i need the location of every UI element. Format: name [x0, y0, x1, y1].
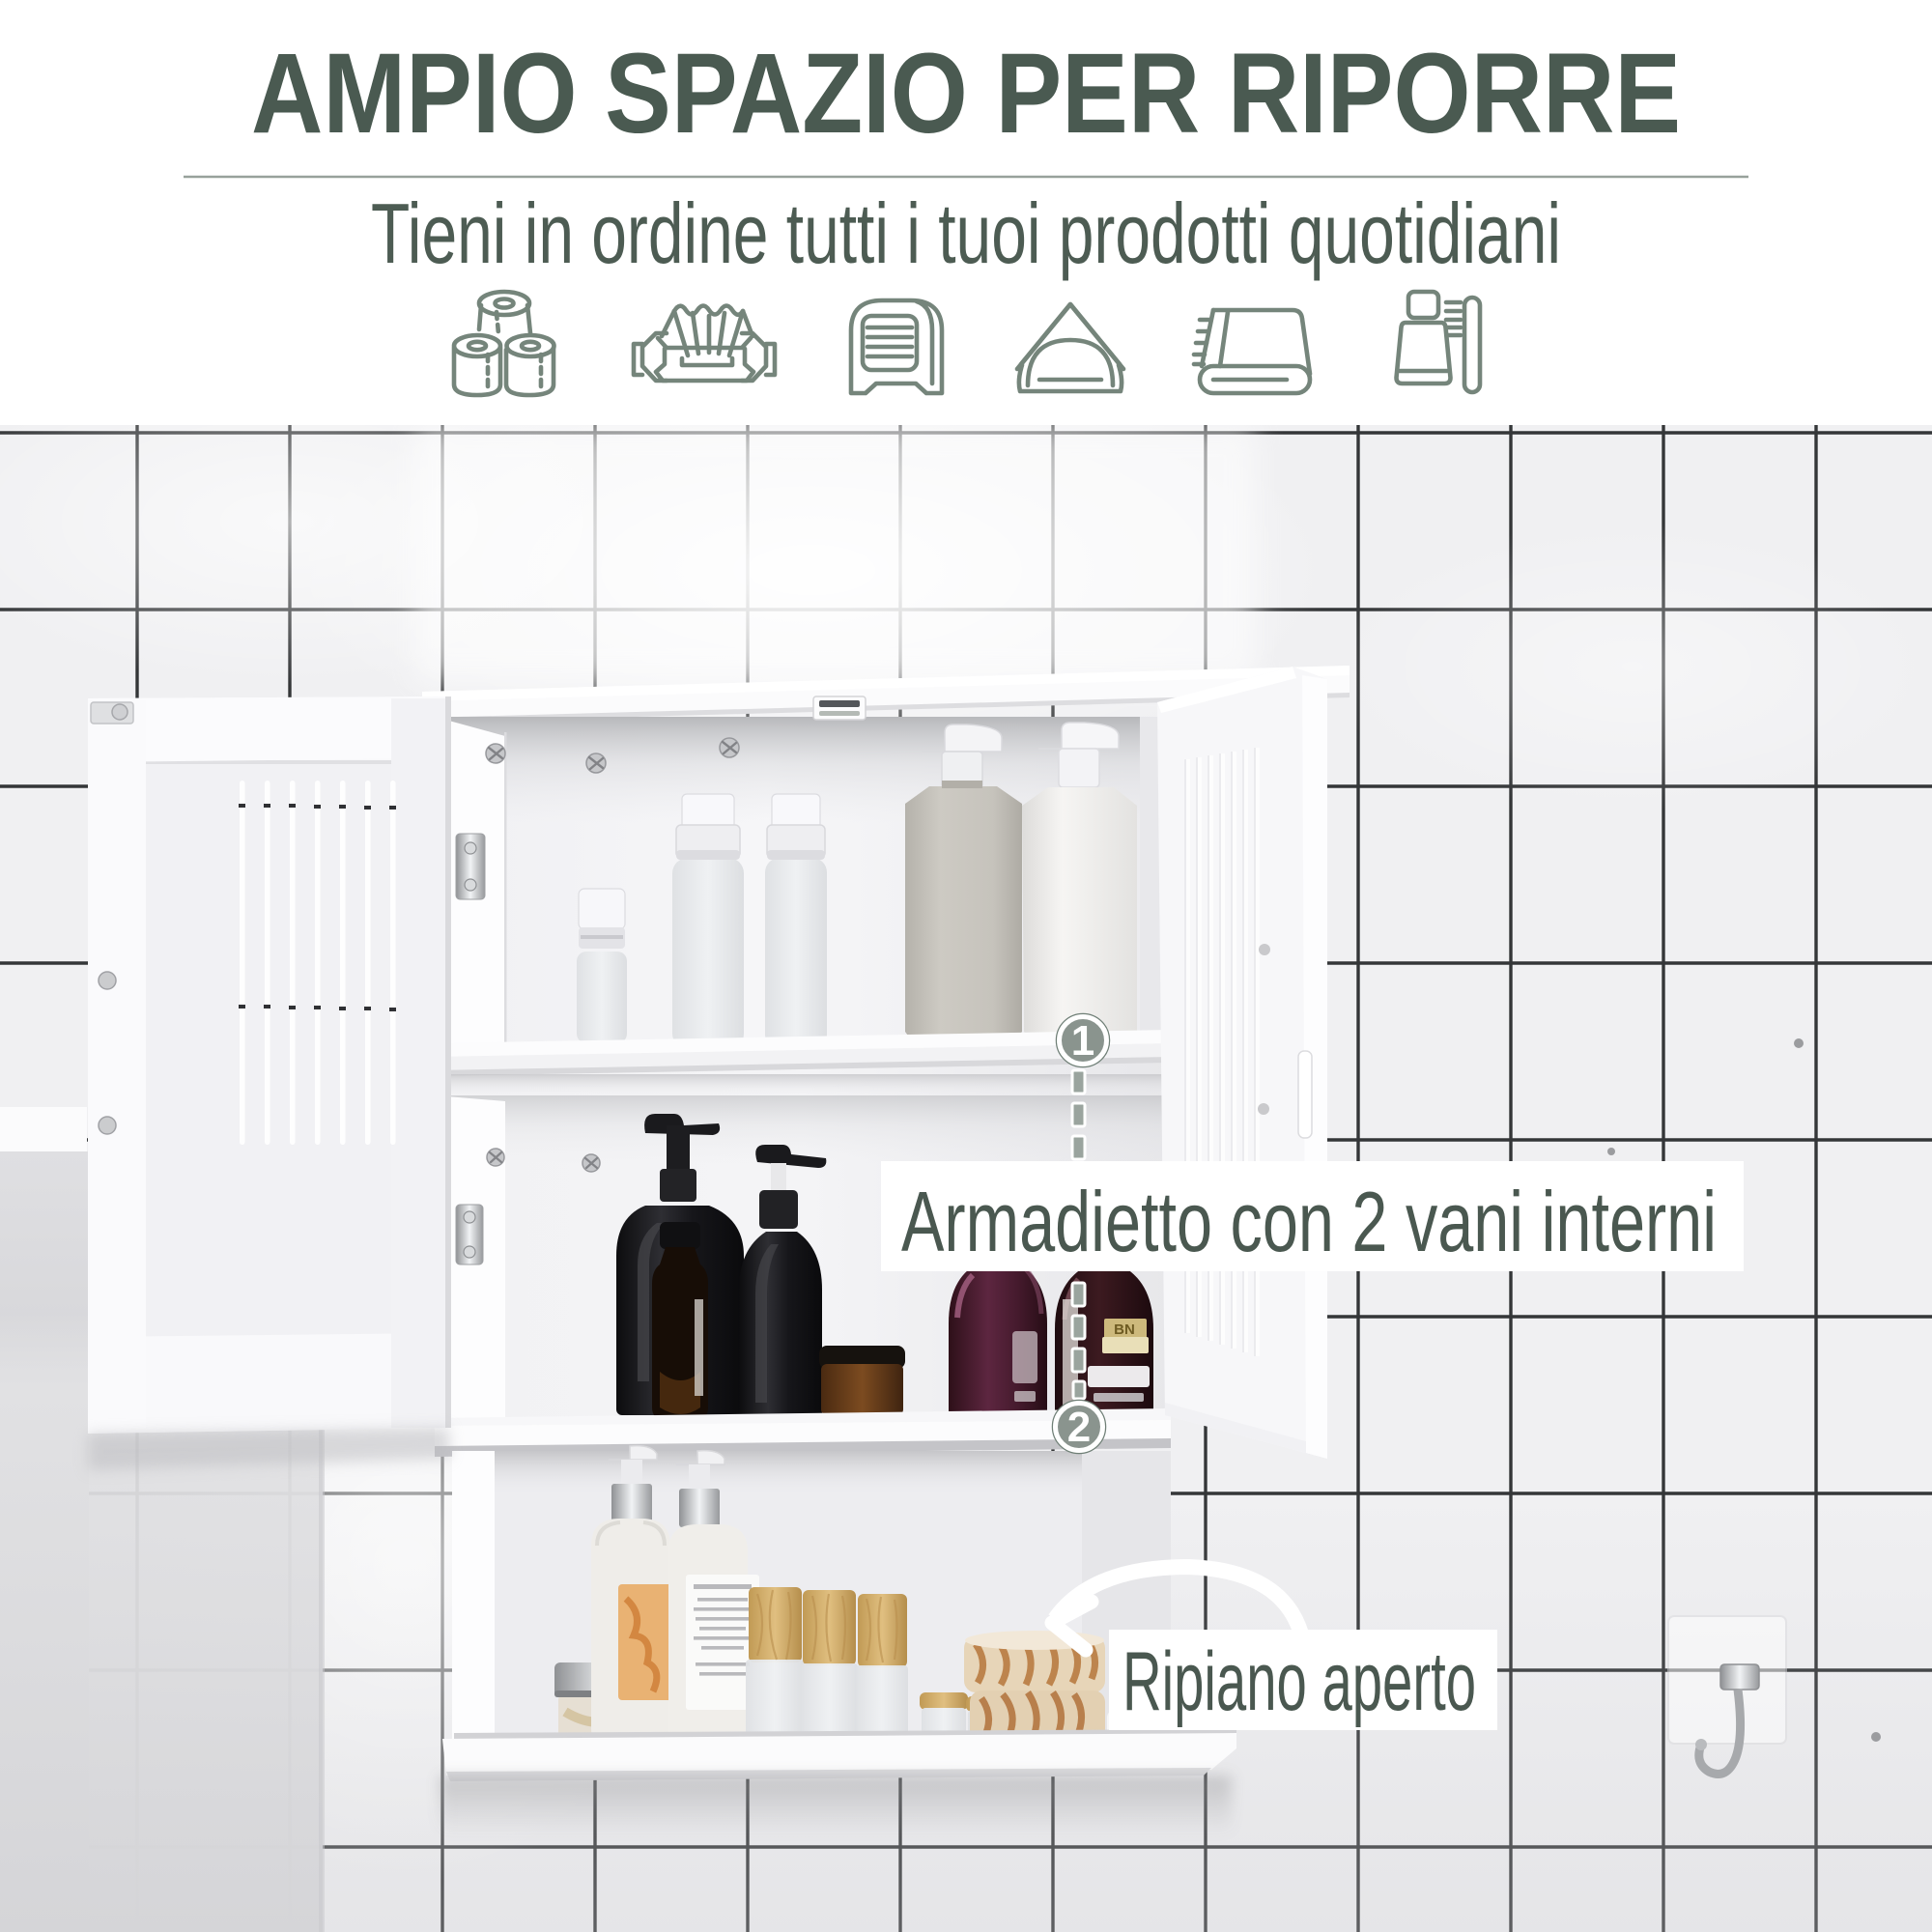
- svg-text:BN: BN: [1114, 1321, 1135, 1338]
- svg-text:Armadietto con 2 vani interni: Armadietto con 2 vani interni: [901, 1174, 1717, 1269]
- svg-text:1: 1: [1071, 1017, 1094, 1065]
- svg-text:2: 2: [1067, 1404, 1091, 1451]
- svg-text:Ripiano aperto: Ripiano aperto: [1122, 1635, 1476, 1728]
- svg-text:Tieni in ordine tutti i tuoi p: Tieni in ordine tutti i tuoi prodotti qu…: [371, 185, 1561, 281]
- svg-text:AMPIO SPAZIO PER RIPORRE: AMPIO SPAZIO PER RIPORRE: [251, 30, 1681, 157]
